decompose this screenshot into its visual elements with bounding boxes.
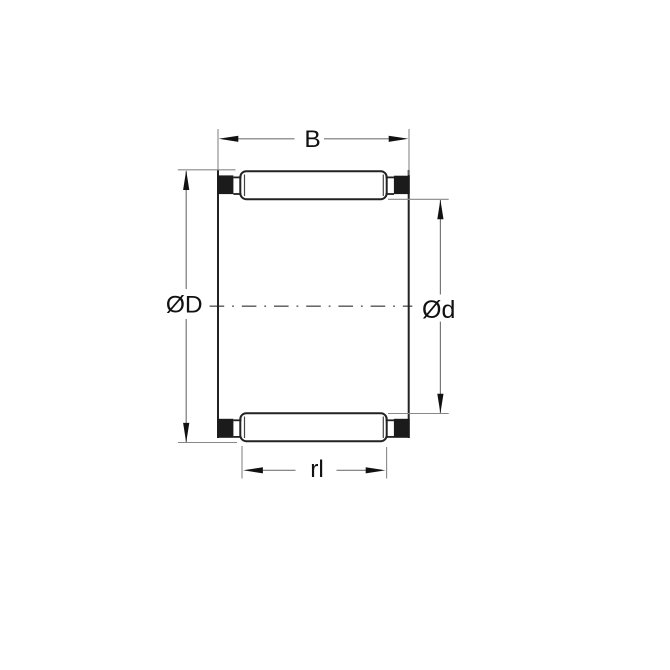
svg-text:Ød: Ød — [422, 296, 455, 324]
svg-text:ØD: ØD — [166, 292, 203, 319]
svg-text:rl: rl — [310, 456, 324, 483]
svg-text:B: B — [304, 126, 320, 153]
